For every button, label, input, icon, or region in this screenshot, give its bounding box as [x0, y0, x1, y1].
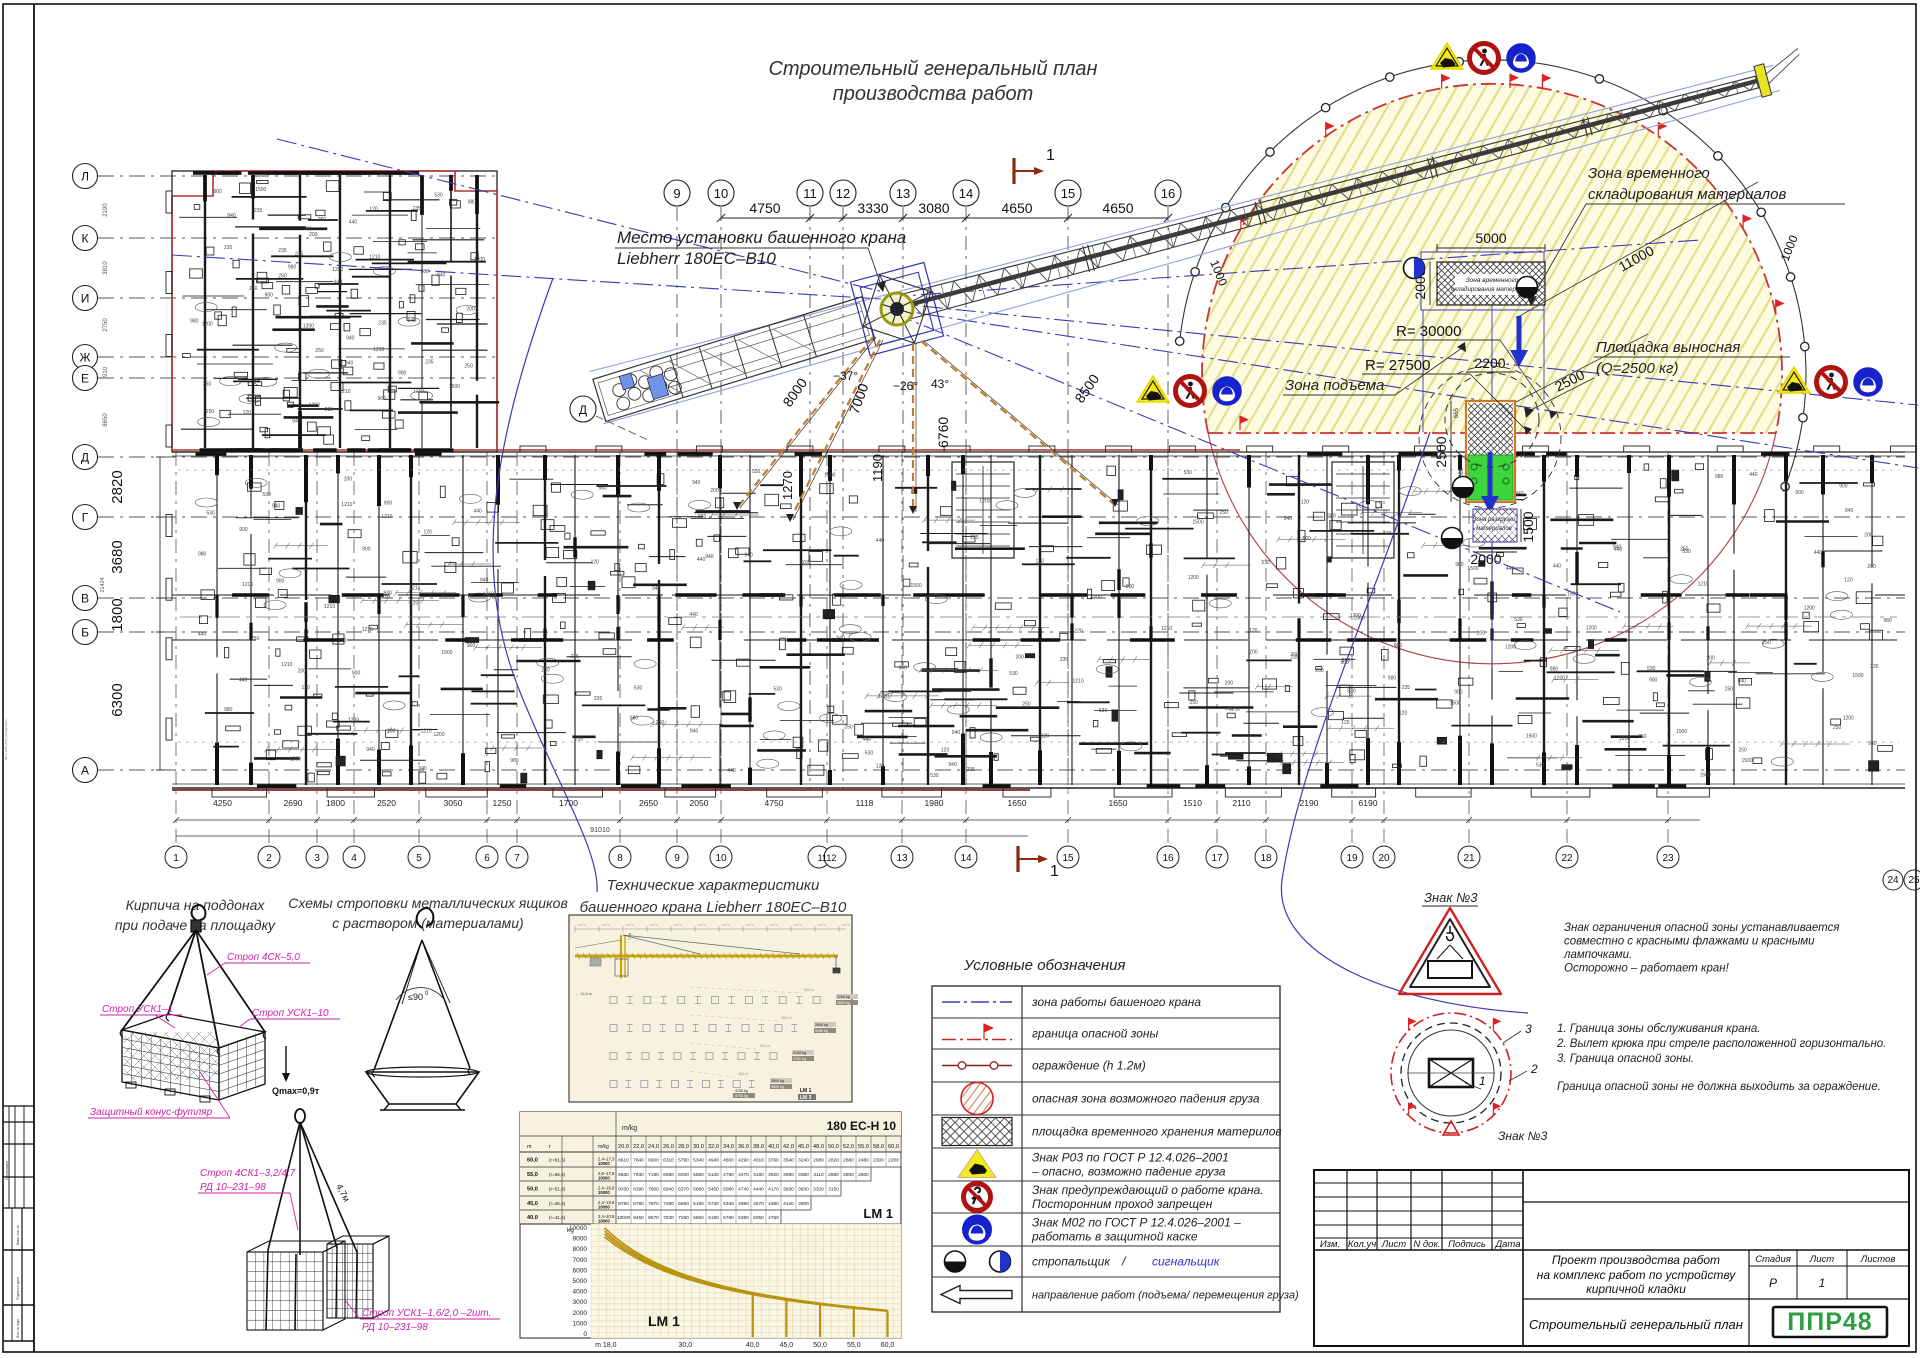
svg-text:235: 235 — [594, 696, 603, 702]
svg-text:235: 235 — [1402, 685, 1411, 691]
svg-text:2200: 2200 — [1474, 355, 1505, 371]
svg-text:940: 940 — [227, 213, 236, 219]
svg-text:Инв. № подл.: Инв. № подл. — [16, 1318, 20, 1338]
svg-text:30,0: 30,0 — [678, 1342, 692, 1349]
svg-text:530: 530 — [206, 510, 215, 516]
svg-text:250: 250 — [1833, 725, 1842, 731]
svg-text:235: 235 — [224, 245, 233, 251]
svg-text:1: 1 — [1046, 147, 1055, 164]
svg-text:55,0: 55,0 — [847, 1342, 861, 1349]
svg-text:120: 120 — [1249, 628, 1258, 634]
svg-text:250: 250 — [541, 667, 550, 673]
svg-text:7280: 7280 — [678, 1215, 689, 1221]
svg-text:2800: 2800 — [843, 1172, 854, 1178]
svg-text:m/kg: m/kg — [598, 1144, 609, 1150]
svg-text:3680: 3680 — [109, 540, 126, 573]
svg-text:10000: 10000 — [617, 1215, 631, 1221]
svg-text:4380: 4380 — [768, 1201, 779, 1207]
svg-text:1210: 1210 — [339, 389, 350, 395]
svg-text:250: 250 — [1638, 734, 1647, 740]
svg-text:940: 940 — [1284, 516, 1293, 522]
svg-text:стропальщик: стропальщик — [1032, 1255, 1111, 1269]
svg-text:18: 18 — [1260, 853, 1272, 864]
svg-text:30,0: 30,0 — [693, 1144, 704, 1150]
svg-text:15: 15 — [1061, 186, 1075, 201]
svg-text:58,0: 58,0 — [873, 1144, 884, 1150]
svg-text:Liebherr 180EC–B10: Liebherr 180EC–B10 — [617, 249, 776, 268]
svg-text:4750: 4750 — [765, 798, 784, 808]
svg-text:20: 20 — [1378, 853, 1390, 864]
svg-text:21: 21 — [1463, 853, 1475, 864]
svg-text:производства работ: производства работ — [833, 83, 1033, 105]
svg-text:Изм.: Изм. — [1320, 1239, 1340, 1250]
svg-text:5050: 5050 — [753, 1215, 764, 1221]
svg-text:7640: 7640 — [633, 1158, 644, 1164]
svg-text:3: 3 — [314, 853, 320, 864]
svg-text:940: 940 — [705, 554, 714, 560]
svg-text:1500: 1500 — [1676, 729, 1687, 735]
svg-text:Строп 4СК1–3,2/4,7: Строп 4СК1–3,2/4,7 — [200, 1168, 296, 1179]
svg-text:34,0: 34,0 — [723, 1144, 734, 1150]
svg-text:5340: 5340 — [693, 1158, 704, 1164]
svg-text:200: 200 — [1016, 654, 1025, 660]
svg-text:1500: 1500 — [441, 650, 452, 656]
svg-text:17: 17 — [1211, 853, 1223, 864]
svg-text:6940: 6940 — [663, 1187, 674, 1193]
svg-text:235: 235 — [254, 208, 263, 214]
svg-text:900: 900 — [467, 643, 476, 649]
svg-text:940: 940 — [366, 747, 375, 753]
svg-text:940: 940 — [419, 766, 428, 772]
svg-text:440: 440 — [689, 612, 698, 618]
svg-text:3150: 3150 — [828, 1187, 839, 1193]
svg-text:9450: 9450 — [633, 1215, 644, 1221]
svg-text:1210: 1210 — [324, 604, 335, 610]
svg-text:200: 200 — [1864, 533, 1873, 539]
svg-text:8830: 8830 — [618, 1172, 629, 1178]
svg-text:530: 530 — [752, 469, 761, 475]
svg-text:1500: 1500 — [824, 472, 835, 478]
svg-text:21424: 21424 — [100, 577, 106, 592]
svg-text:1200: 1200 — [202, 321, 213, 327]
svg-text:940: 940 — [1845, 508, 1854, 514]
svg-text:3240: 3240 — [798, 1158, 809, 1164]
svg-text:башенного крана Liebherr 180EC: башенного крана Liebherr 180EC–B10 — [580, 899, 847, 916]
svg-text:5: 5 — [416, 853, 422, 864]
svg-text:Лист: Лист — [1381, 1239, 1407, 1250]
svg-text:5140: 5140 — [708, 1172, 719, 1178]
svg-text:940: 940 — [836, 636, 845, 642]
svg-text:900: 900 — [1795, 490, 1804, 496]
svg-text:940: 940 — [408, 318, 417, 324]
svg-text:6300: 6300 — [109, 683, 126, 716]
svg-text:250: 250 — [1725, 687, 1734, 693]
svg-text:2520: 2520 — [377, 798, 396, 808]
svg-text:8650: 8650 — [103, 413, 109, 427]
svg-text:2050: 2050 — [690, 798, 709, 808]
svg-text:6760: 6760 — [935, 417, 951, 448]
svg-text:1500: 1500 — [1467, 566, 1478, 572]
svg-text:5080: 5080 — [723, 1187, 734, 1193]
svg-text:120: 120 — [1399, 710, 1408, 716]
svg-text:2600 kg: 2600 kg — [837, 1001, 850, 1005]
svg-text:1210: 1210 — [1161, 626, 1172, 632]
svg-text:1210: 1210 — [421, 729, 432, 735]
svg-text:1210: 1210 — [242, 582, 253, 588]
svg-text:7000: 7000 — [573, 1257, 588, 1264]
svg-text:10000: 10000 — [598, 1190, 610, 1195]
svg-text:граница опасной зоны: граница опасной зоны — [1032, 1027, 1159, 1041]
svg-text:m 18,0: m 18,0 — [595, 1342, 617, 1349]
svg-text:440: 440 — [239, 677, 248, 683]
svg-text:Защитный конус-футляр: Защитный конус-футляр — [90, 1106, 213, 1118]
svg-text:7190: 7190 — [648, 1172, 659, 1178]
svg-text:← 14,5 м: ← 14,5 м — [575, 991, 592, 996]
svg-text:980: 980 — [599, 485, 608, 491]
svg-text:площадка временного хранения м: площадка временного хранения материлов — [1032, 1125, 1282, 1139]
svg-text:3330: 3330 — [857, 200, 888, 216]
svg-text:1118: 1118 — [856, 798, 874, 808]
svg-text:2600: 2600 — [858, 1172, 869, 1178]
svg-text:900: 900 — [214, 189, 223, 195]
svg-text:980: 980 — [468, 199, 477, 205]
svg-text:Проект производства работ: Проект производства работ — [1552, 1253, 1720, 1267]
svg-text:1500: 1500 — [1742, 758, 1753, 764]
svg-text:m: m — [527, 1144, 532, 1150]
svg-text:19: 19 — [1346, 853, 1358, 864]
svg-text:1210: 1210 — [409, 585, 420, 591]
svg-text:250: 250 — [464, 364, 473, 370]
svg-text:2190: 2190 — [103, 203, 109, 217]
svg-text:Mi14_w08_PPR_stroygenplan: Mi14_w08_PPR_stroygenplan — [4, 719, 8, 760]
svg-text:6560: 6560 — [663, 1172, 674, 1178]
svg-text:1000: 1000 — [573, 1320, 588, 1327]
svg-text:Б: Б — [81, 626, 89, 640]
svg-text:43°: 43° — [931, 377, 949, 391]
svg-text:4650: 4650 — [1102, 200, 1133, 216]
svg-text:26,0: 26,0 — [663, 1144, 674, 1150]
svg-text:530: 530 — [1514, 617, 1523, 623]
svg-text:440: 440 — [697, 557, 706, 563]
svg-text:R= 27500: R= 27500 — [1365, 357, 1430, 374]
svg-text:10,0 м: 10,0 м — [818, 923, 826, 927]
svg-text:3150 kg: 3150 kg — [815, 1029, 828, 1033]
svg-text:940: 940 — [1738, 679, 1747, 685]
svg-text:4990: 4990 — [738, 1201, 749, 1207]
svg-text:530: 530 — [865, 751, 874, 757]
svg-text:900: 900 — [362, 546, 371, 552]
svg-text:200: 200 — [1225, 680, 1234, 686]
svg-text:5790: 5790 — [678, 1158, 689, 1164]
svg-text:55,0: 55,0 — [527, 1172, 538, 1178]
svg-text:8000: 8000 — [573, 1246, 588, 1253]
svg-text:Подпись и дата: Подпись и дата — [16, 1277, 20, 1300]
svg-text:складирования материалов: складирования материалов — [1588, 186, 1786, 203]
svg-text:4500 kg: 4500 kg — [771, 1085, 784, 1089]
svg-text:1500: 1500 — [911, 583, 922, 589]
svg-text:3080: 3080 — [918, 200, 949, 216]
svg-text:ограждение (h 1.2м): ограждение (h 1.2м) — [1032, 1059, 1146, 1073]
svg-text:235: 235 — [570, 654, 579, 660]
svg-text:50,0: 50,0 — [527, 1187, 538, 1193]
svg-text:1: 1 — [1819, 1276, 1826, 1290]
svg-text:250: 250 — [318, 217, 327, 223]
svg-text:235: 235 — [378, 321, 387, 327]
svg-text:530: 530 — [773, 686, 782, 692]
svg-text:РД 10–231–98: РД 10–231–98 — [200, 1182, 266, 1193]
svg-text:R= 30000: R= 30000 — [1396, 323, 1461, 340]
svg-text:20,0: 20,0 — [618, 1144, 629, 1150]
svg-text:1200: 1200 — [434, 732, 445, 738]
svg-text:1: 1 — [1050, 863, 1059, 880]
svg-text:10: 10 — [714, 186, 728, 201]
svg-text:Кол.уч: Кол.уч — [1348, 1239, 1376, 1250]
svg-text:900: 900 — [1839, 483, 1848, 489]
svg-text:1200: 1200 — [1554, 676, 1565, 682]
svg-text:2110: 2110 — [1232, 798, 1251, 808]
svg-text:1200: 1200 — [1619, 736, 1630, 742]
svg-text:235: 235 — [970, 535, 979, 541]
svg-text:1650: 1650 — [1008, 798, 1027, 808]
svg-text:9000: 9000 — [573, 1236, 588, 1243]
svg-text:3600 kg: 3600 kg — [771, 1079, 784, 1083]
svg-text:440: 440 — [1749, 472, 1758, 478]
svg-text:120: 120 — [1036, 559, 1045, 565]
svg-text:Граница опасной зоны не должна: Граница опасной зоны не должна выходить … — [1557, 1081, 1881, 1093]
svg-text:235: 235 — [1291, 654, 1300, 660]
svg-text:3: 3 — [1525, 1022, 1532, 1036]
svg-text:2300: 2300 — [873, 1158, 884, 1164]
svg-text:3930: 3930 — [783, 1187, 794, 1193]
svg-text:10,0 м: 10,0 м — [578, 923, 586, 927]
svg-text:Зона разгрузки: Зона разгрузки — [1473, 517, 1516, 523]
svg-text:Знак Р03 по ГОСТ Р 12.4.026–20: Знак Р03 по ГОСТ Р 12.4.026–2001 — [1032, 1151, 1229, 1165]
svg-text:530: 530 — [1262, 560, 1271, 566]
svg-text:9: 9 — [674, 853, 680, 864]
svg-text:1. Граница зоны обслуживания к: 1. Граница зоны обслуживания крана. — [1557, 1023, 1760, 1035]
svg-text:120: 120 — [302, 685, 311, 691]
svg-text:530: 530 — [1009, 671, 1018, 677]
svg-text:120: 120 — [1341, 720, 1350, 726]
svg-text:r: r — [549, 1144, 551, 1150]
svg-text:4740: 4740 — [738, 1187, 749, 1193]
svg-text:2600 kg: 2600 kg — [815, 1023, 828, 1027]
svg-text:10000: 10000 — [598, 1219, 610, 1224]
svg-text:ППР48: ППР48 — [1787, 1308, 1872, 1336]
svg-text:530: 530 — [1347, 689, 1356, 695]
svg-text:8780: 8780 — [618, 1201, 629, 1207]
svg-text:440: 440 — [334, 280, 343, 286]
svg-text:6310: 6310 — [663, 1158, 674, 1164]
svg-text:940: 940 — [292, 418, 301, 424]
svg-text:250: 250 — [656, 720, 665, 726]
svg-text:15: 15 — [1062, 853, 1074, 864]
svg-text:3050: 3050 — [444, 798, 463, 808]
svg-text:235: 235 — [325, 407, 334, 413]
svg-text:200: 200 — [309, 232, 318, 238]
svg-text:6180: 6180 — [708, 1215, 719, 1221]
svg-text:1800: 1800 — [326, 798, 345, 808]
svg-text:кирпичной кладки: кирпичной кладки — [1586, 1282, 1686, 1296]
svg-text:4250: 4250 — [213, 798, 232, 808]
svg-text:5450: 5450 — [708, 1187, 719, 1193]
svg-text:250: 250 — [1327, 514, 1336, 520]
svg-text:1200: 1200 — [979, 499, 990, 505]
svg-text:235: 235 — [1870, 664, 1879, 670]
svg-text:10000: 10000 — [598, 1161, 610, 1166]
svg-text:120: 120 — [1301, 499, 1310, 505]
svg-text:LM 1: LM 1 — [863, 1206, 893, 1221]
svg-text:530: 530 — [1647, 666, 1656, 672]
svg-text:120: 120 — [410, 601, 419, 607]
svg-text:14: 14 — [960, 853, 972, 864]
svg-text:6190: 6190 — [1359, 798, 1378, 808]
svg-text:1800: 1800 — [109, 598, 126, 631]
svg-text:5340: 5340 — [723, 1201, 734, 1207]
svg-text:5000: 5000 — [1475, 230, 1506, 246]
svg-text:10,0 м: 10,0 м — [770, 923, 778, 927]
svg-text:940: 940 — [652, 586, 661, 592]
svg-text:3320: 3320 — [813, 1187, 824, 1193]
svg-text:2950: 2950 — [828, 1172, 839, 1178]
svg-text:1650: 1650 — [1109, 798, 1128, 808]
svg-text:(r=61,6): (r=61,6) — [549, 1158, 566, 1163]
svg-text:235: 235 — [967, 767, 976, 773]
svg-text:440: 440 — [1515, 491, 1524, 497]
svg-text:250: 250 — [278, 274, 287, 280]
svg-text:235: 235 — [295, 251, 304, 257]
svg-text:3810: 3810 — [103, 261, 109, 275]
svg-text:24: 24 — [1887, 875, 1899, 886]
svg-text:10,0 м: 10,0 м — [794, 923, 802, 927]
svg-text:440: 440 — [304, 227, 313, 233]
svg-text:1210: 1210 — [369, 254, 380, 260]
svg-text:980: 980 — [630, 715, 639, 721]
svg-text:45,0: 45,0 — [798, 1144, 809, 1150]
svg-text:12: 12 — [836, 186, 850, 201]
svg-text:Р: Р — [1769, 1276, 1777, 1290]
svg-text:6180: 6180 — [693, 1201, 704, 1207]
svg-text:10,0 м: 10,0 м — [698, 923, 706, 927]
svg-text:1200: 1200 — [303, 324, 314, 330]
svg-text:kg: kg — [567, 1227, 574, 1234]
svg-text:250: 250 — [206, 409, 215, 415]
svg-text:48,0: 48,0 — [813, 1144, 824, 1150]
svg-text:14: 14 — [959, 186, 973, 201]
svg-text:6020: 6020 — [678, 1172, 689, 1178]
svg-text:980: 980 — [1550, 667, 1559, 673]
svg-text:1500: 1500 — [1526, 733, 1537, 739]
svg-text:1500: 1500 — [1193, 520, 1204, 526]
svg-text:3110: 3110 — [813, 1172, 824, 1178]
svg-text:120: 120 — [941, 748, 950, 754]
svg-text:1200: 1200 — [1843, 715, 1854, 721]
svg-text:13: 13 — [896, 853, 908, 864]
svg-text:250: 250 — [251, 636, 260, 642]
svg-text:440: 440 — [727, 768, 736, 774]
svg-text:200: 200 — [382, 594, 391, 600]
svg-text:440: 440 — [349, 220, 358, 226]
svg-text:250: 250 — [1220, 510, 1229, 516]
svg-text:1210: 1210 — [341, 502, 352, 508]
svg-text:235: 235 — [575, 736, 584, 742]
svg-text:22,0: 22,0 — [633, 1144, 644, 1150]
svg-text:940: 940 — [744, 553, 753, 559]
svg-text:45,0 m: 45,0 m — [738, 1072, 748, 1076]
svg-text:LM 1: LM 1 — [648, 1313, 680, 1329]
svg-text:900: 900 — [378, 396, 387, 402]
svg-text:2200: 2200 — [888, 1158, 899, 1164]
svg-text:250: 250 — [1680, 546, 1689, 552]
svg-text:5760: 5760 — [723, 1215, 734, 1221]
svg-text:0: 0 — [583, 1331, 587, 1338]
svg-text:И: И — [81, 292, 90, 306]
svg-text:250: 250 — [203, 382, 212, 388]
svg-text:1200: 1200 — [1586, 626, 1597, 632]
svg-text:сигнальщик: сигнальщик — [1152, 1255, 1221, 1269]
svg-text:Знак ограничения опасной зоны: Знак ограничения опасной зоны устанавлив… — [1564, 922, 1840, 934]
svg-text:N док.: N док. — [1413, 1239, 1440, 1250]
svg-text:200: 200 — [387, 729, 396, 735]
svg-text:Зона временного: Зона временного — [1466, 277, 1519, 284]
svg-text:900: 900 — [899, 666, 908, 672]
svg-text:440: 440 — [474, 509, 483, 515]
svg-text:530: 530 — [1184, 470, 1193, 476]
svg-text:Г: Г — [82, 511, 89, 525]
svg-text:3750 kg: 3750 kg — [793, 1057, 806, 1061]
svg-text:1500: 1500 — [1520, 511, 1536, 542]
svg-text:10,0 м: 10,0 м — [746, 923, 754, 927]
svg-text:9330: 9330 — [618, 1187, 629, 1193]
svg-text:980: 980 — [1388, 675, 1397, 681]
svg-text:235: 235 — [1060, 657, 1069, 663]
svg-text:1: 1 — [173, 853, 179, 864]
svg-text:Листов: Листов — [1860, 1254, 1896, 1265]
svg-text:8570: 8570 — [648, 1215, 659, 1221]
svg-text:1270: 1270 — [780, 471, 795, 500]
svg-text:– опасно, возможно падение гру: – опасно, возможно падение груза — [1031, 1165, 1226, 1179]
svg-text:4750: 4750 — [749, 200, 780, 216]
svg-text:980: 980 — [1455, 562, 1464, 568]
svg-text:4180: 4180 — [753, 1172, 764, 1178]
svg-text:1200: 1200 — [309, 403, 320, 409]
svg-text:Место установки башенного кран: Место установки башенного крана — [617, 228, 906, 247]
svg-text:2000: 2000 — [1470, 551, 1501, 567]
svg-text:8: 8 — [617, 853, 623, 864]
svg-text:m/kg: m/kg — [622, 1125, 637, 1132]
svg-text:2980: 2980 — [813, 1158, 824, 1164]
svg-text:120: 120 — [424, 529, 433, 535]
svg-text:10,0 м: 10,0 м — [674, 923, 682, 927]
svg-text:900: 900 — [352, 671, 361, 677]
svg-text:250: 250 — [1762, 640, 1771, 646]
svg-text:Технические характеристики: Технические характеристики — [607, 877, 820, 894]
svg-text:1500: 1500 — [1852, 673, 1863, 679]
svg-text:7: 7 — [514, 853, 520, 864]
svg-text:24,0: 24,0 — [648, 1144, 659, 1150]
svg-text:900: 900 — [1126, 584, 1135, 590]
svg-text:250: 250 — [1190, 700, 1199, 706]
svg-text:7830: 7830 — [663, 1215, 674, 1221]
svg-text:Посторонним проход запрещен: Посторонним проход запрещен — [1032, 1197, 1213, 1211]
svg-text:3540: 3540 — [783, 1158, 794, 1164]
svg-text:1210: 1210 — [1698, 582, 1709, 588]
svg-text:1510: 1510 — [1183, 798, 1202, 808]
svg-text:980: 980 — [198, 552, 207, 558]
svg-text:Зона подъема: Зона подъема — [1285, 377, 1384, 394]
svg-text:1200: 1200 — [1188, 575, 1199, 581]
svg-text:1210: 1210 — [362, 627, 373, 633]
